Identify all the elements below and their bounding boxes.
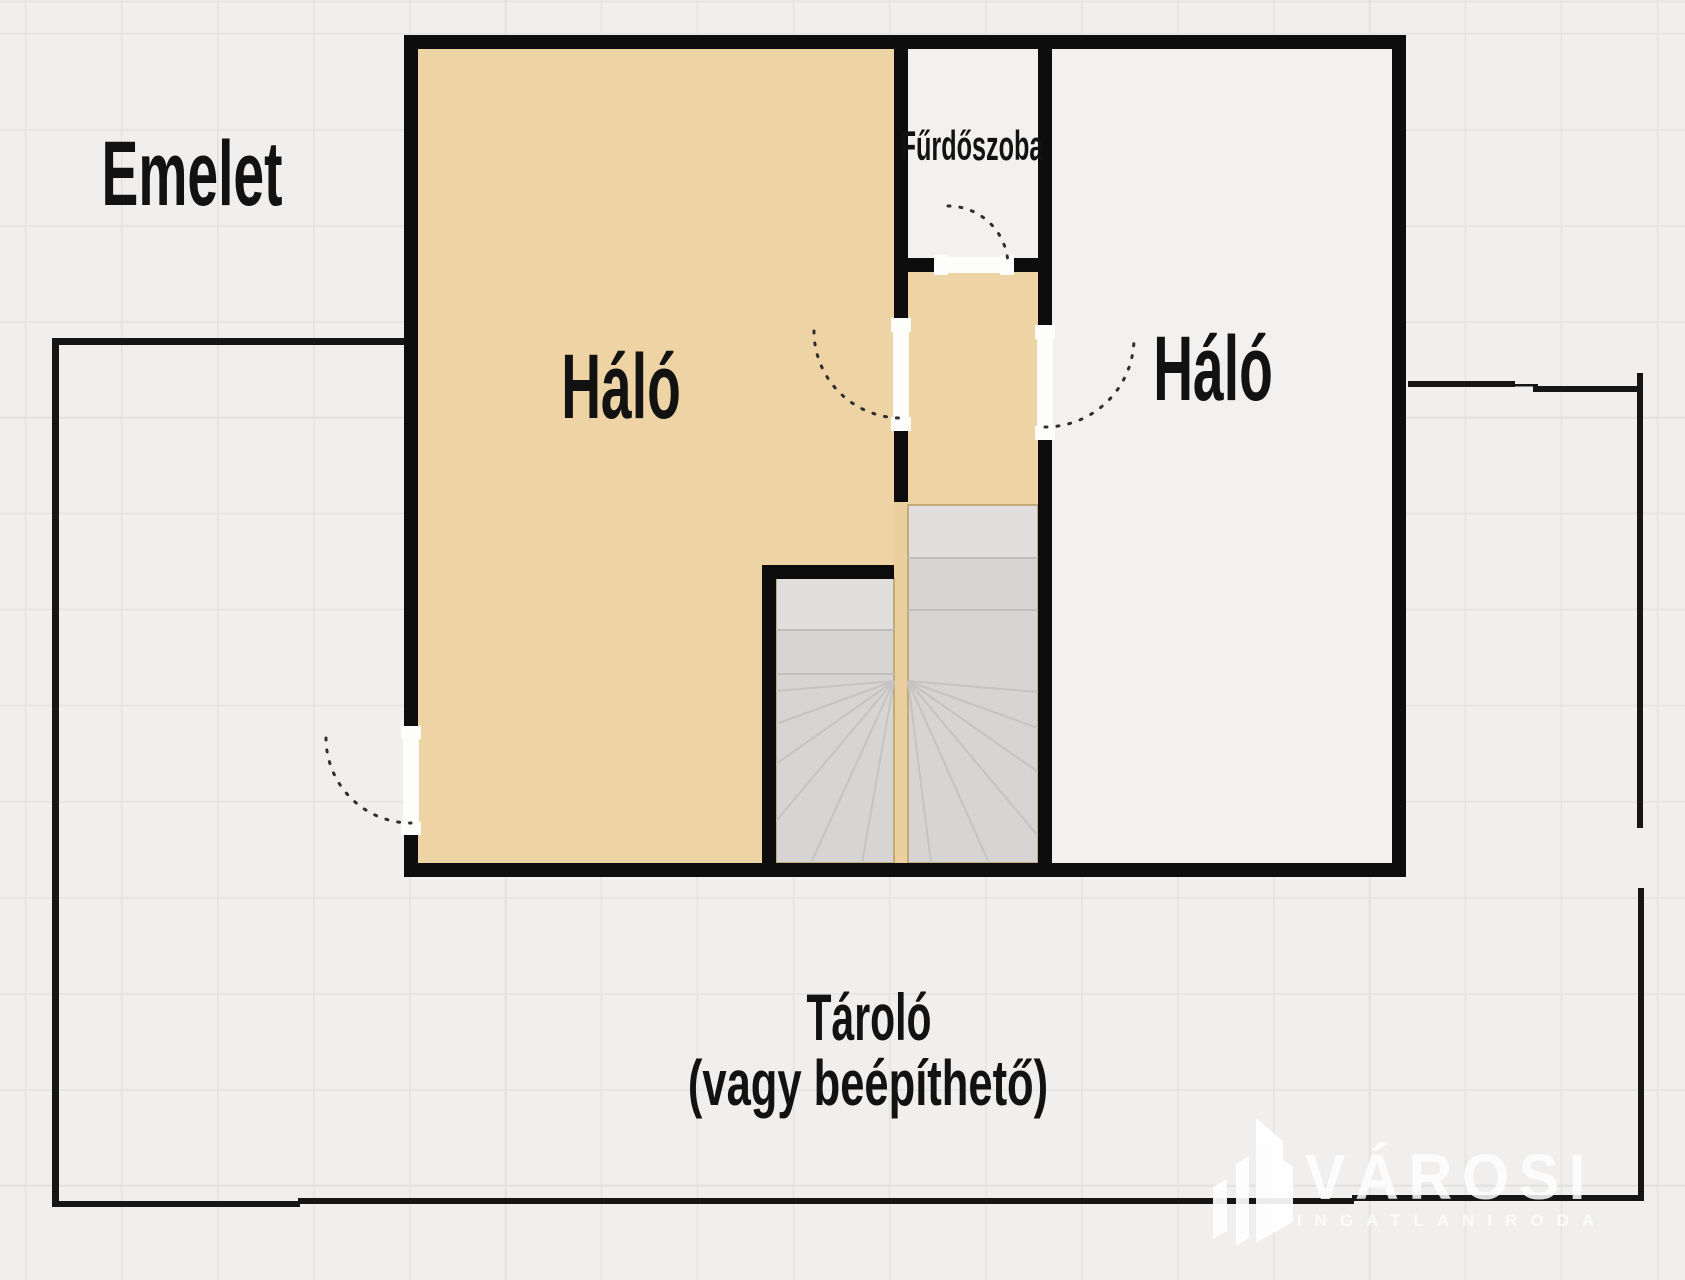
stair-divider-strip (894, 500, 908, 863)
watermark: VÁROSI INGATLANIRODA (1213, 1118, 1607, 1246)
door-gap-left-wall (403, 738, 419, 823)
room-label-bedroom-right: Háló (1153, 318, 1273, 421)
floor-title: Emelet (101, 123, 282, 226)
buildings-icon (1213, 1118, 1293, 1246)
floor-plan-canvas: Emelet Háló Háló Fűrdőszoba Tároló (vagy… (0, 0, 1685, 1280)
terrace-wall-top-b (1533, 386, 1640, 392)
terrace-wall-top-a (1408, 381, 1515, 387)
storage-wall-bottom-b (298, 1198, 1354, 1204)
buildings-icon-slab-mid (1236, 1156, 1249, 1246)
stair-flight-left (776, 578, 894, 863)
wall-outer-left-upper (404, 35, 418, 738)
storage-wall-top-left (52, 338, 411, 345)
wall-stair-left (762, 565, 776, 863)
door-gap-bathroom (948, 257, 1000, 273)
room-label-bedroom-left: Háló (561, 336, 681, 439)
watermark-brand: VÁROSI (1305, 1142, 1595, 1214)
wall-outer-right (1392, 35, 1406, 877)
stair-flight-right-landing (909, 506, 1037, 558)
buildings-icon-slab-large (1256, 1118, 1293, 1243)
door-jamb (891, 417, 911, 431)
terrace-wall-right-upper (1637, 373, 1643, 828)
room-label-storage: Tároló (806, 980, 931, 1055)
storage-wall-left (52, 338, 59, 1207)
hall-floor (908, 272, 1038, 512)
stair-flight-right (908, 505, 1038, 863)
wall-partition-left-upper (894, 49, 908, 331)
floor-plan: Emelet Háló Háló Fűrdőszoba Tároló (vagy… (0, 0, 1685, 1280)
door-jamb (401, 726, 421, 739)
storage-wall-bottom-a (52, 1201, 300, 1207)
terrace-wall-right-lower (1638, 888, 1644, 1201)
terrace-boundary-lines (1408, 373, 1644, 1201)
door-jamb (934, 255, 948, 275)
wall-stair-top (762, 565, 894, 579)
buildings-icon-slab-small (1213, 1179, 1227, 1239)
door-jamb (1035, 325, 1055, 339)
room-label-bathroom: Fűrdőszoba (901, 124, 1044, 170)
room-sublabel-storage: (vagy beépíthető) (688, 1047, 1048, 1120)
door-gap-bedroom-left (893, 331, 909, 418)
wall-partition-right-lower (1038, 427, 1052, 863)
wall-outer-bottom (404, 863, 1406, 877)
door-arc-left-wall (326, 738, 411, 823)
stair-flight-left-landing (777, 579, 893, 629)
door-gap-bedroom-right (1037, 338, 1053, 427)
watermark-tagline: INGATLANIRODA (1297, 1211, 1607, 1230)
door-jamb (891, 318, 911, 332)
wall-partition-right-upper (1038, 49, 1052, 338)
wall-outer-top (404, 35, 1406, 49)
bedroom-right-floor (1052, 49, 1392, 863)
